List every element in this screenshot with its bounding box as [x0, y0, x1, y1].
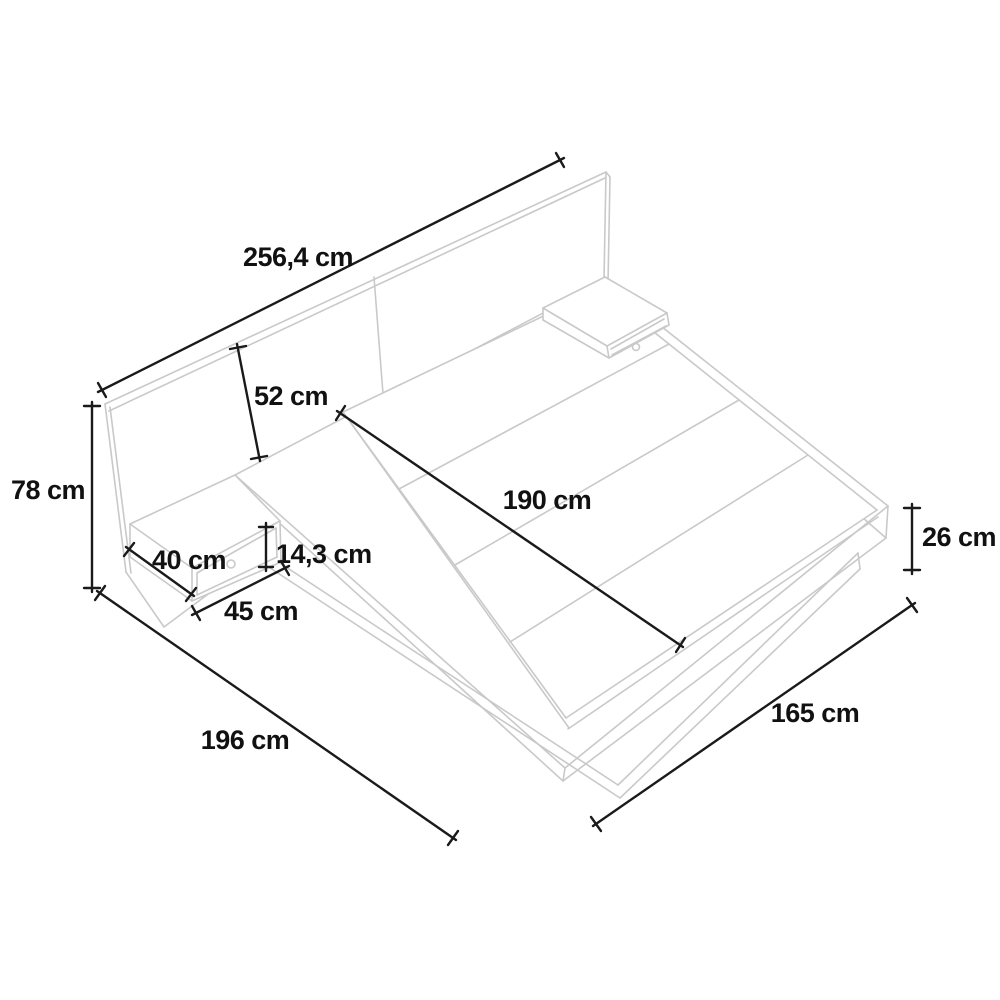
dim-label-bed-length: 196 cm: [201, 725, 290, 755]
headboard-foot-front-edge: [126, 572, 164, 627]
diagram-canvas: 256,4 cm 52 cm 78 cm 190 cm: [0, 0, 1000, 1000]
platform-right-corner-edge: [886, 506, 888, 538]
dim-label-bed-width: 165 cm: [771, 698, 860, 728]
dim-total-height: 78 cm: [11, 402, 100, 592]
bed-dimensions-diagram: 256,4 cm 52 cm 78 cm 190 cm: [0, 0, 1000, 1000]
dim-label-platform-height: 26 cm: [922, 522, 996, 552]
dim-label-total-height: 78 cm: [11, 475, 85, 505]
headboard-right-inner-edge: [608, 177, 610, 284]
base-right-corner-edge: [858, 553, 860, 569]
dim-label-headboard-visible-height: 52 cm: [254, 381, 328, 411]
dim-label-headboard-width: 256,4 cm: [243, 242, 353, 272]
dim-label-nightstand-front-height: 14,3 cm: [276, 539, 372, 569]
dim-platform-height: 26 cm: [904, 504, 996, 574]
dim-label-nightstand-depth: 40 cm: [152, 545, 226, 575]
dim-label-mattress-length: 190 cm: [503, 485, 592, 515]
dim-label-nightstand-width: 45 cm: [224, 596, 298, 626]
